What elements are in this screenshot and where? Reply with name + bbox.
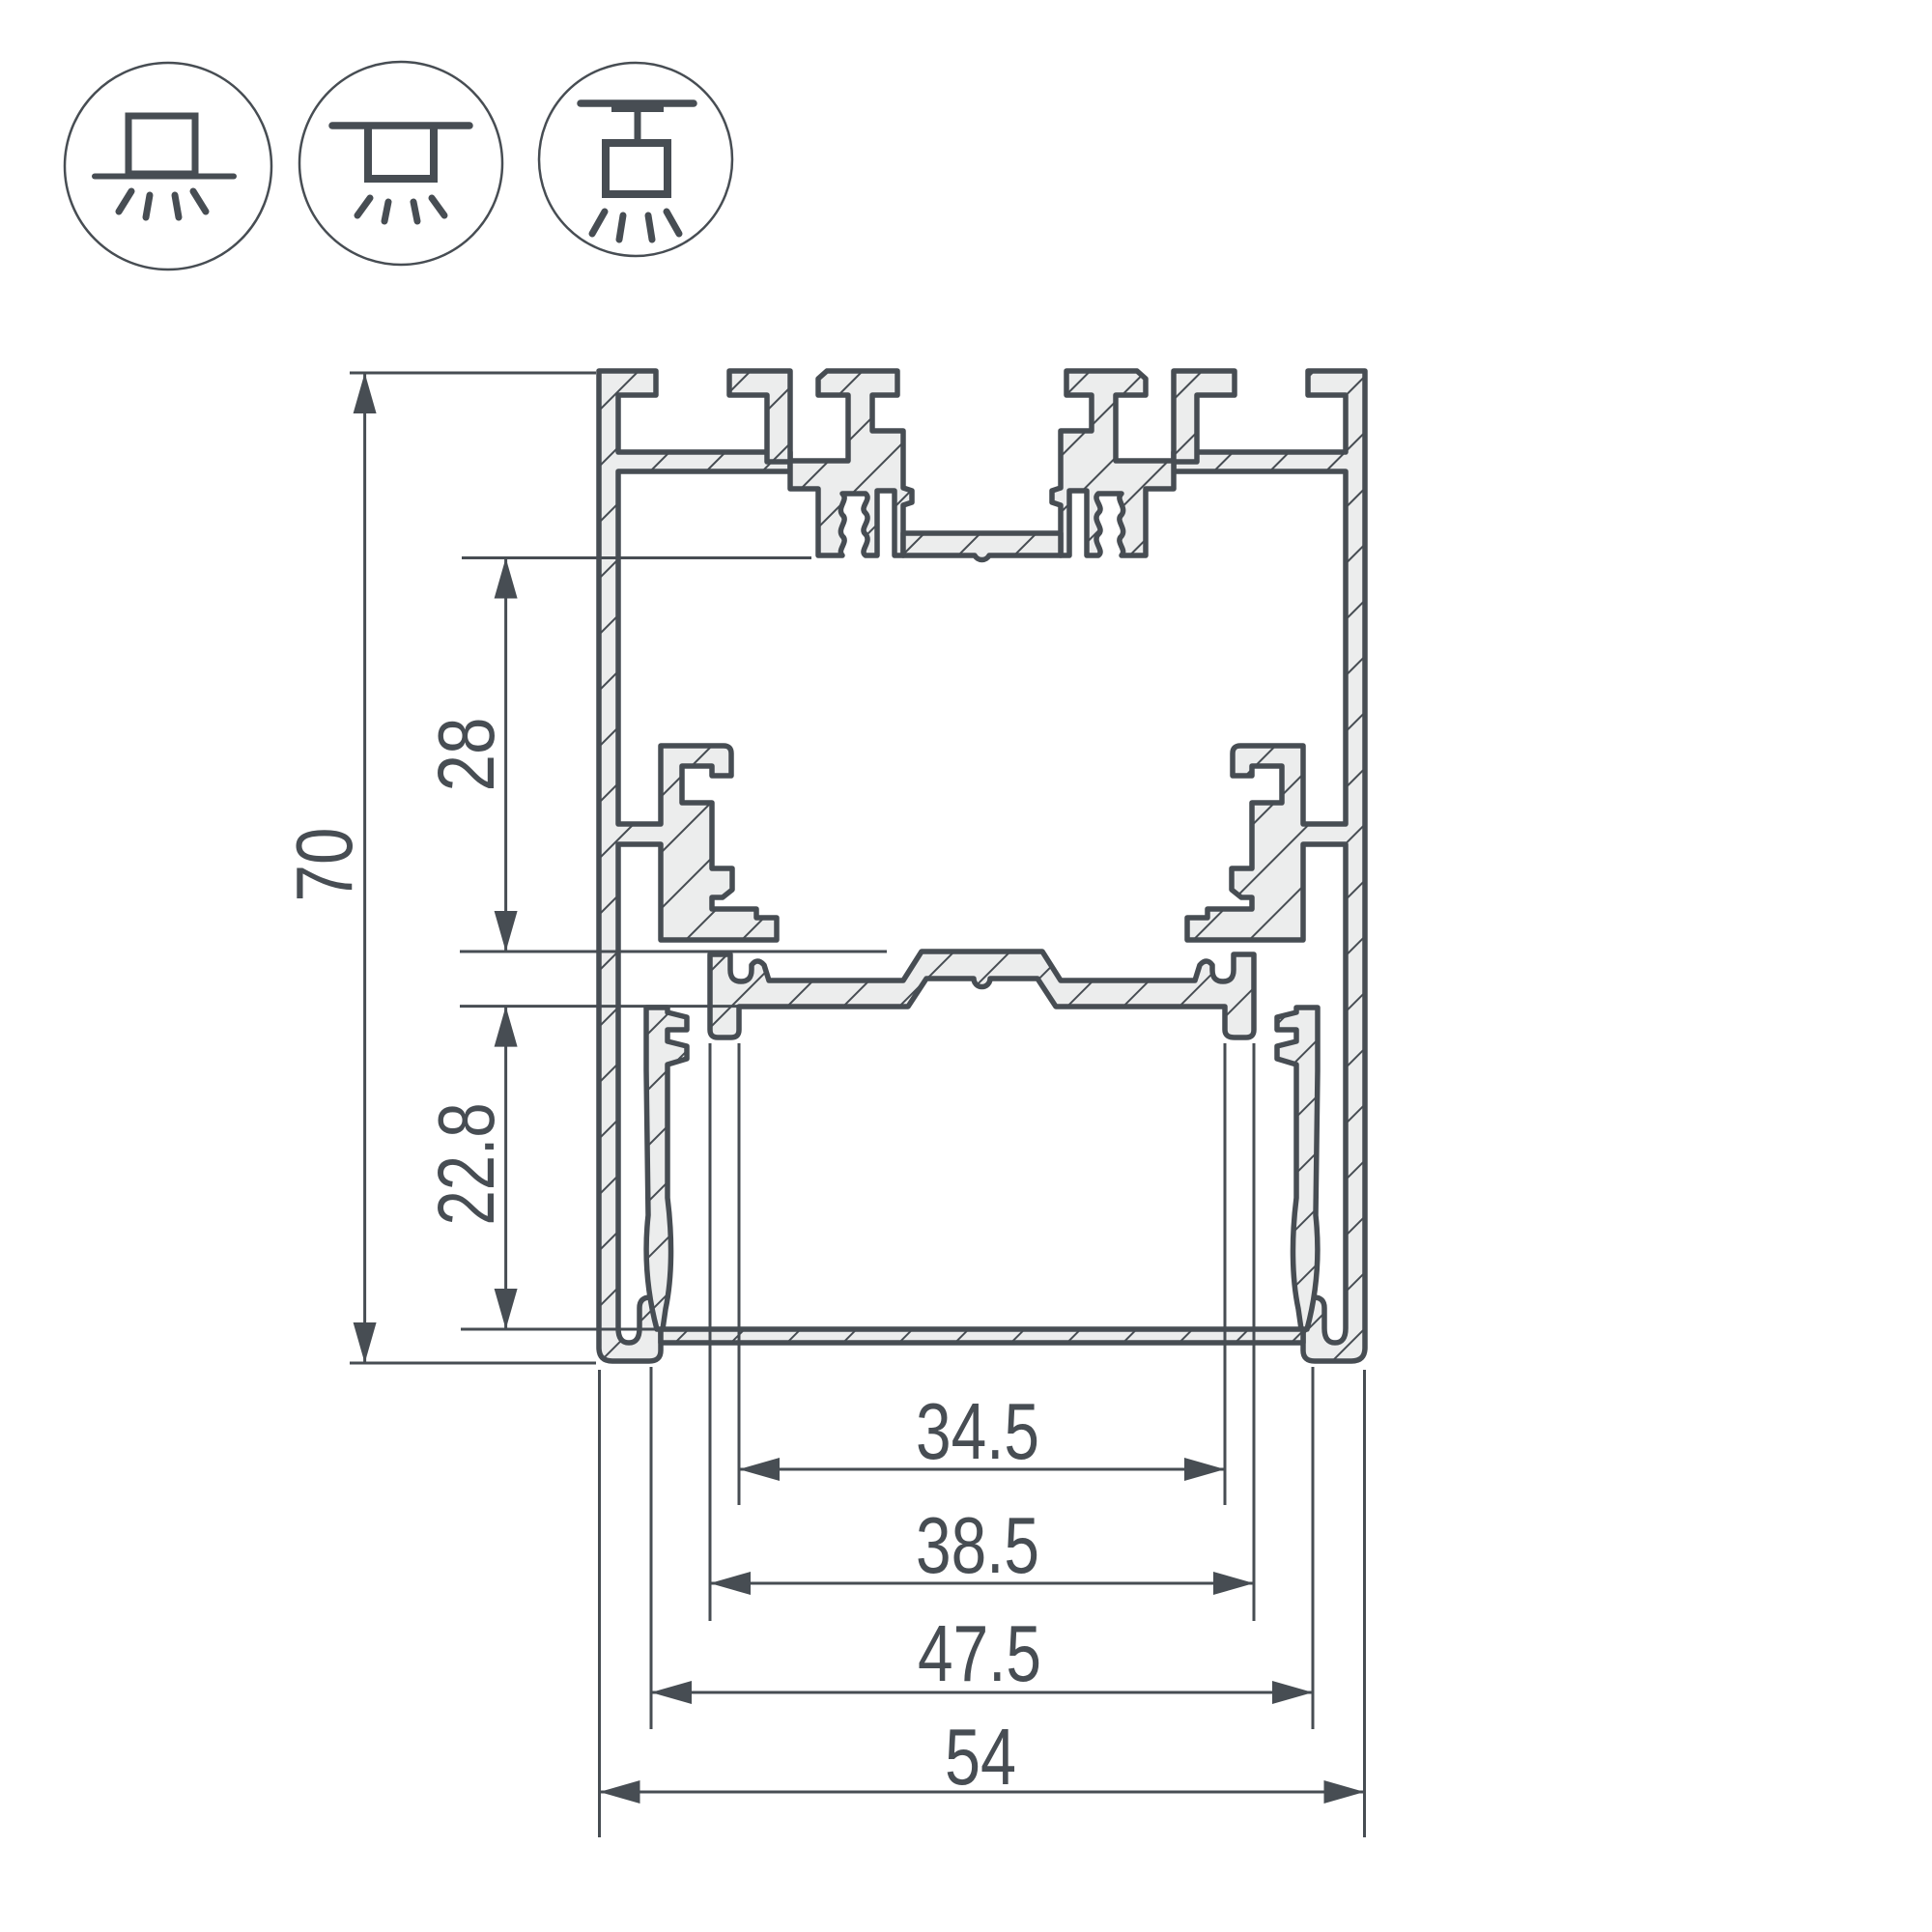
svg-text:28: 28	[421, 718, 511, 792]
svg-text:47.5: 47.5	[918, 1608, 1041, 1698]
svg-text:38.5: 38.5	[916, 1500, 1039, 1590]
svg-text:70: 70	[279, 828, 369, 902]
svg-text:54: 54	[945, 1712, 1016, 1802]
svg-text:34.5: 34.5	[916, 1386, 1039, 1476]
svg-text:22.8: 22.8	[421, 1103, 511, 1226]
